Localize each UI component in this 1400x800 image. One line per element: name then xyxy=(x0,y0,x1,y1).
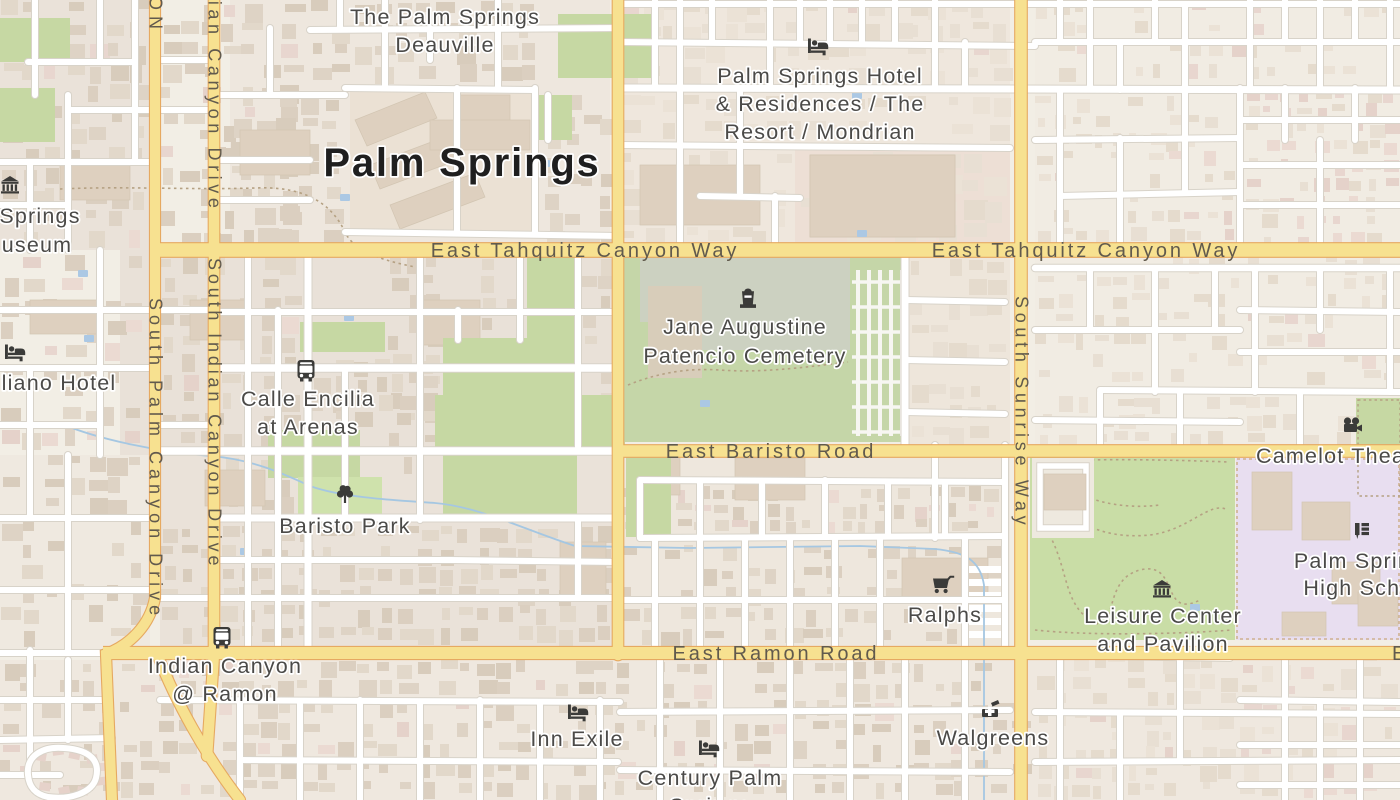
svg-text:Palm Springs: Palm Springs xyxy=(323,141,600,185)
svg-text:Century Palm: Century Palm xyxy=(638,766,783,790)
svg-text:at Arenas: at Arenas xyxy=(257,415,359,439)
svg-text:Patencio Cemetery: Patencio Cemetery xyxy=(643,344,846,368)
svg-text:Resort / Mondrian: Resort / Mondrian xyxy=(724,120,915,144)
svg-text:liano Hotel: liano Hotel xyxy=(2,371,117,395)
svg-text:East Ramon Road: East Ramon Road xyxy=(673,643,880,665)
svg-text:East Baristo Road: East Baristo Road xyxy=(666,441,877,463)
svg-text:East Tahquitz Canyon Way: East Tahquitz Canyon Way xyxy=(431,240,740,262)
svg-text:The Palm Springs: The Palm Springs xyxy=(350,5,540,29)
svg-text:Walgreens: Walgreens xyxy=(937,726,1050,750)
svg-text:Camelot Theatre: Camelot Theatre xyxy=(1256,444,1400,468)
svg-text:High School: High School xyxy=(1303,576,1400,600)
svg-text:East R: East R xyxy=(1392,643,1400,665)
svg-text:Jane Augustine: Jane Augustine xyxy=(663,315,827,339)
svg-text:Ralphs: Ralphs xyxy=(908,603,982,627)
svg-text:East Tahquitz Canyon Way: East Tahquitz Canyon Way xyxy=(932,240,1241,262)
svg-text:South Sunrise Way: South Sunrise Way xyxy=(1012,296,1032,529)
svg-text:@ Ramon: @ Ramon xyxy=(172,682,278,706)
svg-text:Deauville: Deauville xyxy=(395,33,494,57)
svg-text:Springs: Springs xyxy=(0,204,81,228)
svg-text:Palm Springs: Palm Springs xyxy=(1294,549,1400,573)
svg-text:Indian Canyon: Indian Canyon xyxy=(148,654,302,678)
svg-text:Leisure Center: Leisure Center xyxy=(1084,604,1242,628)
svg-text:South Palm Canyon Drive: South Palm Canyon Drive xyxy=(146,298,166,620)
svg-text:useum: useum xyxy=(2,233,73,257)
svg-text:South Indian Canyon Drive: South Indian Canyon Drive xyxy=(205,258,225,569)
svg-text:& Residences / The: & Residences / The xyxy=(716,92,925,116)
svg-text:and Pavilion: and Pavilion xyxy=(1097,632,1229,656)
svg-text:Palm Springs Hotel: Palm Springs Hotel xyxy=(717,64,923,88)
svg-text:Baristo Park: Baristo Park xyxy=(279,514,411,538)
svg-text:Calle Encilia: Calle Encilia xyxy=(241,387,375,411)
svg-text:ON: ON xyxy=(146,0,166,35)
svg-text:Inn Exile: Inn Exile xyxy=(530,727,623,751)
svg-text:Indian Canyon Drive: Indian Canyon Drive xyxy=(205,0,225,213)
svg-text:Springs: Springs xyxy=(669,794,750,800)
